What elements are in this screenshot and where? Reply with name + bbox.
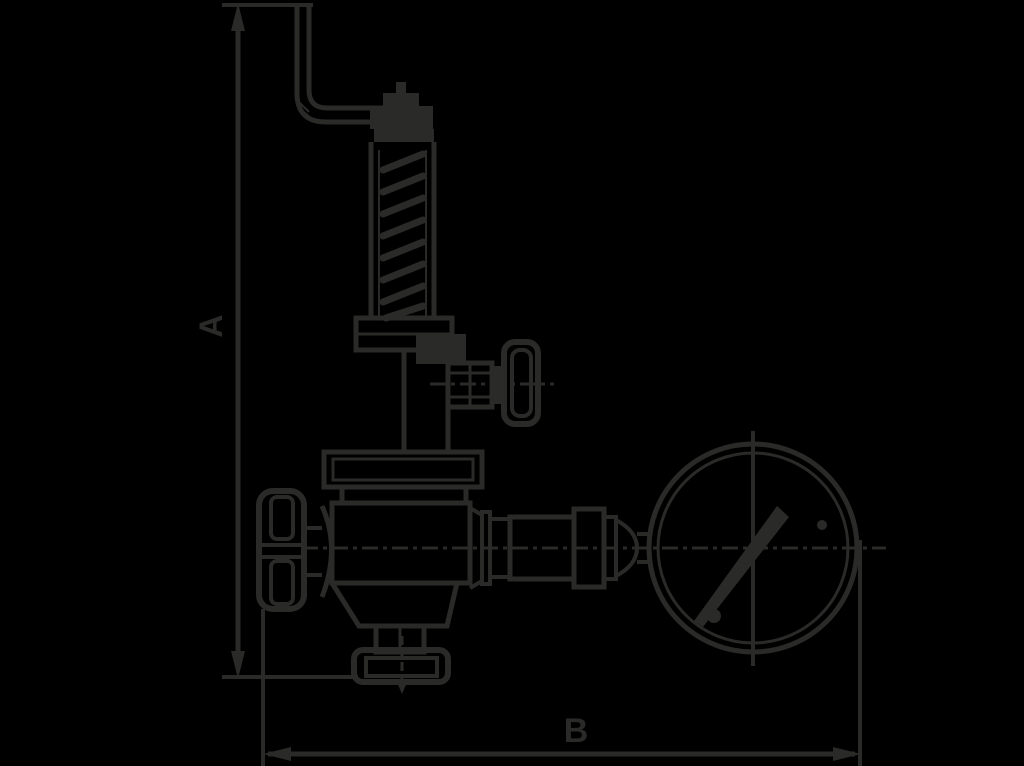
lever-inner-edge [309, 5, 383, 108]
cap-plate [374, 129, 434, 142]
spring-housing [356, 142, 452, 350]
dimension-a-label: A [193, 314, 229, 337]
column-body [404, 350, 448, 452]
spindle-column [404, 334, 466, 452]
dimension-b-arrow-right [833, 747, 861, 761]
outlet-flow-arrow [396, 636, 408, 694]
junction-boss [416, 334, 466, 364]
dimension-b-label: B [564, 712, 589, 750]
gauge-needle [694, 506, 789, 627]
coil-spring [383, 154, 423, 318]
valve-gauge-assembly-drawing: A B [0, 0, 1024, 766]
body-skirt [332, 583, 457, 626]
dimension-a-arrow-down [231, 651, 245, 679]
lifting-lever [297, 5, 383, 122]
dimension-a-arrow-up [231, 3, 245, 31]
technical-drawing-canvas: A B [0, 0, 1024, 766]
flange-inner [333, 459, 473, 480]
valve-cap-assembly [370, 82, 434, 142]
gauge-dial-screw-left [707, 609, 721, 623]
cap-pin [396, 82, 406, 94]
handwheel-spoke-bottom [271, 561, 293, 604]
handwheel-spoke-top [271, 497, 293, 539]
cap-nut [383, 93, 419, 106]
bonnet-flange [324, 452, 482, 503]
dimension-b-arrow-left [263, 747, 291, 761]
handwheel [259, 491, 332, 609]
gauge-dial-screw-right [817, 520, 827, 530]
body-block [332, 503, 470, 583]
fulcrum-block [370, 106, 433, 129]
handwheel-rim [259, 491, 304, 609]
flange-outer [324, 452, 482, 487]
